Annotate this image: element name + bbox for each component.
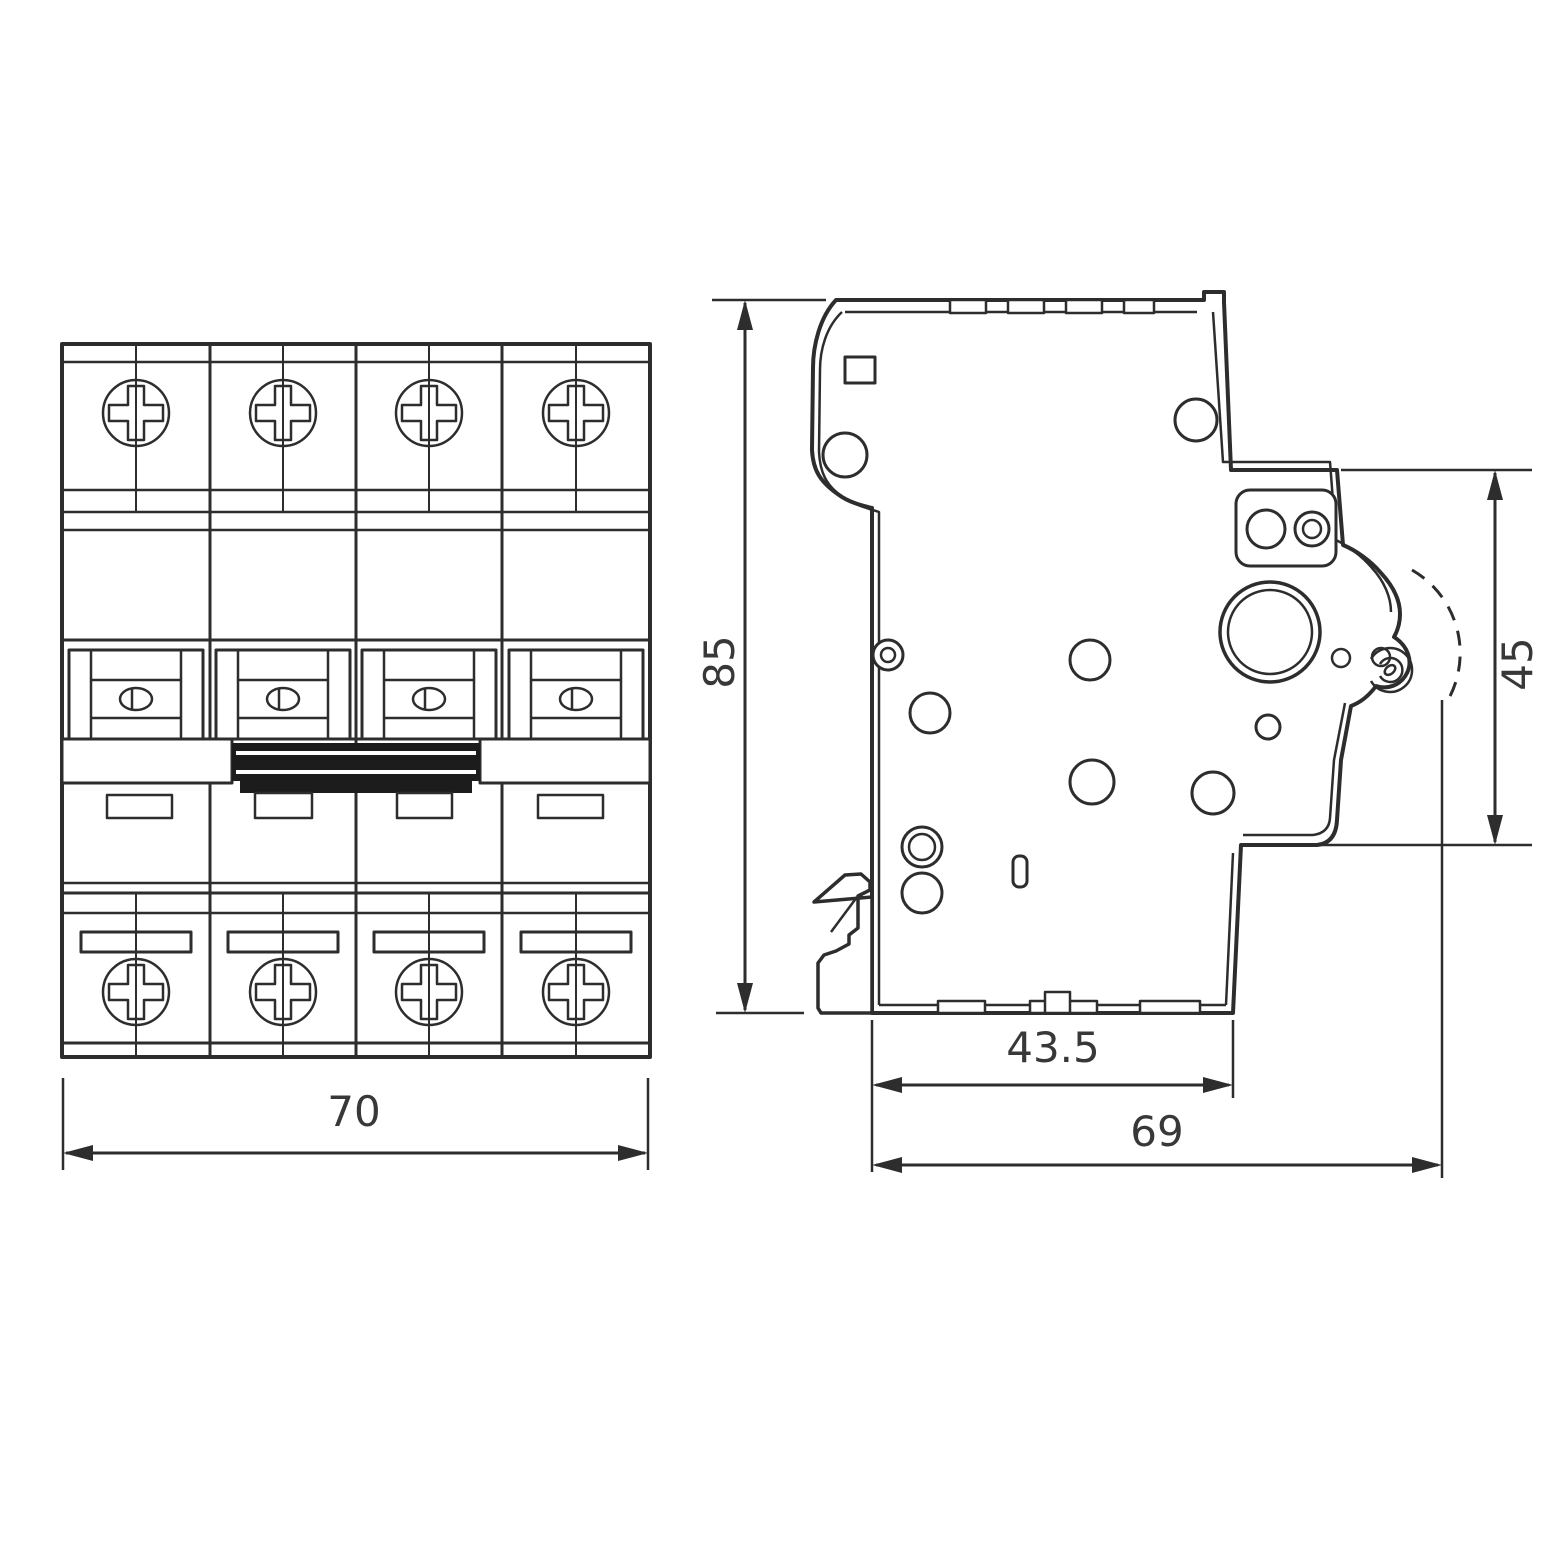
toggle-pivot bbox=[1220, 582, 1320, 682]
dimension-label-side-height: 85 bbox=[695, 635, 744, 688]
pole-dividers bbox=[210, 344, 502, 1057]
dim-front-width: 70 bbox=[63, 1078, 648, 1170]
dim-side-height: 85 bbox=[695, 300, 826, 1013]
terminal-clamp bbox=[216, 650, 350, 739]
terminal-clamp bbox=[362, 650, 496, 739]
dimension-label-depth-body: 43.5 bbox=[1006, 1023, 1100, 1072]
terminal-clamp bbox=[69, 650, 203, 739]
dimension-label-depth-total: 69 bbox=[1130, 1107, 1183, 1156]
drawing-page: 70 bbox=[0, 0, 1564, 1564]
rivet-slot bbox=[1013, 856, 1027, 887]
dimension-label-front-width: 70 bbox=[327, 1087, 380, 1136]
handle-boss bbox=[1236, 490, 1336, 566]
dimension-label-handle-height: 45 bbox=[1493, 637, 1542, 690]
front-view: 70 bbox=[62, 344, 650, 1170]
terminal-clamp bbox=[509, 650, 643, 739]
technical-drawing-canvas: 70 bbox=[0, 0, 1564, 1564]
toggle-handle-bar bbox=[232, 743, 480, 793]
toggle-travel-arc bbox=[1412, 570, 1460, 700]
side-view: 85 45 43.5 69 bbox=[695, 292, 1542, 1178]
